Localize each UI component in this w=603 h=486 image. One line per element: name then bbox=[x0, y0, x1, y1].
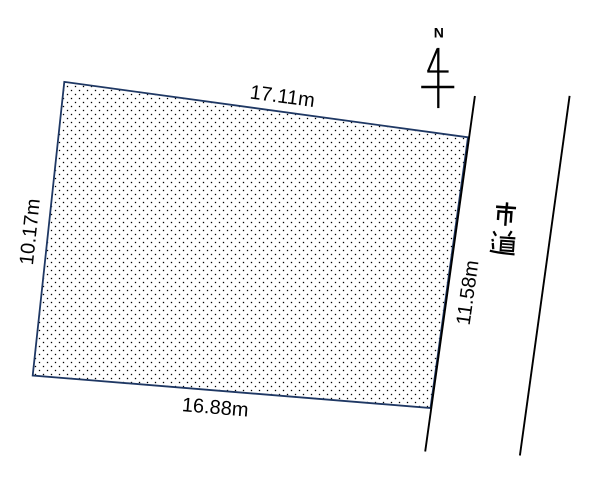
svg-text:10.17m: 10.17m bbox=[16, 198, 45, 267]
svg-text:N: N bbox=[434, 25, 444, 41]
svg-text:17.11m: 17.11m bbox=[249, 82, 317, 113]
svg-text:16.88m: 16.88m bbox=[181, 394, 249, 421]
svg-text:11.58m: 11.58m bbox=[453, 259, 484, 327]
